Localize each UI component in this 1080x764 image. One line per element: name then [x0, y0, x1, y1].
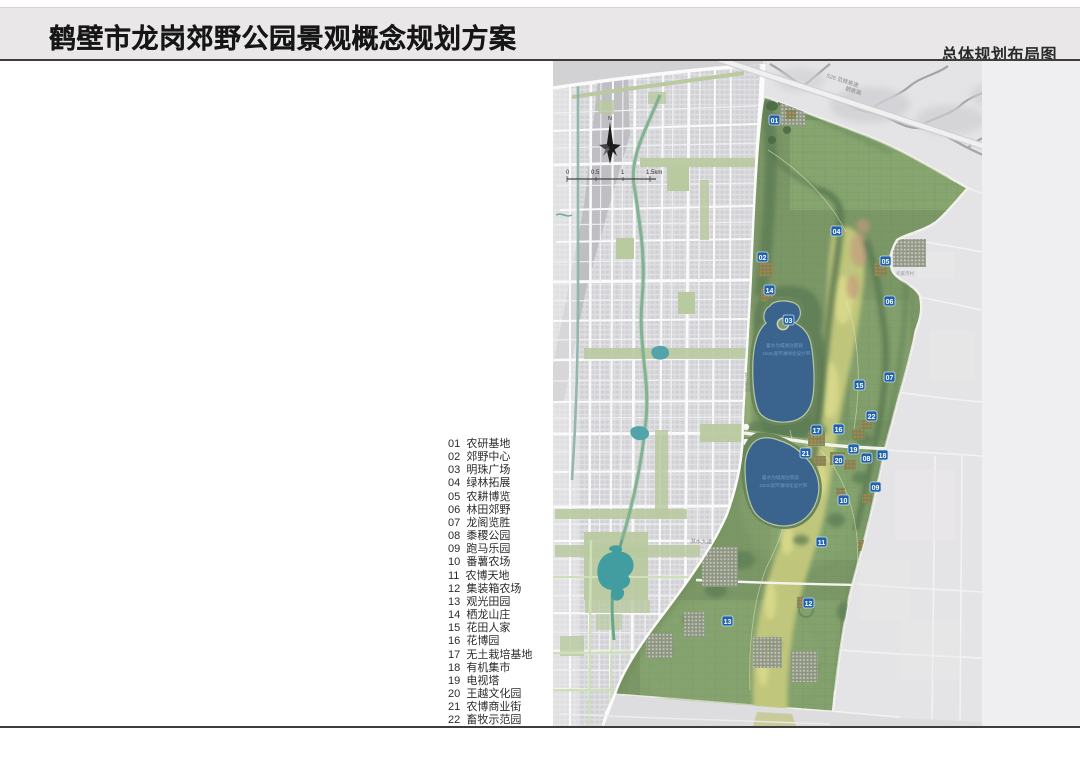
- svg-text:0.5: 0.5: [591, 170, 600, 176]
- svg-text:14: 14: [766, 288, 774, 295]
- svg-text:20: 20: [835, 458, 843, 465]
- svg-text:01: 01: [771, 118, 779, 125]
- svg-text:15: 15: [856, 383, 864, 390]
- svg-text:03: 03: [785, 318, 793, 325]
- svg-text:08: 08: [863, 456, 871, 463]
- svg-text:蓄水为城湖泊景观: 蓄水为城湖泊景观: [766, 342, 803, 349]
- svg-text:09: 09: [872, 485, 880, 492]
- svg-text:12: 12: [805, 601, 813, 608]
- svg-text:21: 21: [802, 451, 810, 458]
- svg-text:05: 05: [882, 259, 890, 266]
- svg-text:N: N: [608, 116, 612, 122]
- svg-text:04: 04: [833, 229, 841, 236]
- svg-text:16: 16: [835, 427, 843, 434]
- svg-text:13: 13: [724, 619, 732, 626]
- svg-text:19: 19: [850, 447, 858, 454]
- svg-text:150m宽环湖绿化设计带: 150m宽环湖绿化设计带: [762, 350, 811, 357]
- svg-text:蓄水为城湖泊景观: 蓄水为城湖泊景观: [762, 474, 799, 481]
- svg-text:02: 02: [759, 255, 767, 262]
- svg-text:150m宽环湖绿化设计带: 150m宽环湖绿化设计带: [759, 482, 808, 489]
- svg-text:11: 11: [818, 540, 826, 547]
- svg-text:1.5km: 1.5km: [646, 170, 662, 176]
- svg-text:10: 10: [840, 498, 848, 505]
- svg-text:07: 07: [886, 375, 894, 382]
- svg-text:22: 22: [868, 414, 876, 421]
- svg-text:18: 18: [879, 453, 887, 460]
- svg-text:06: 06: [886, 299, 894, 306]
- svg-text:17: 17: [813, 428, 821, 435]
- svg-text:武家河村: 武家河村: [896, 270, 914, 276]
